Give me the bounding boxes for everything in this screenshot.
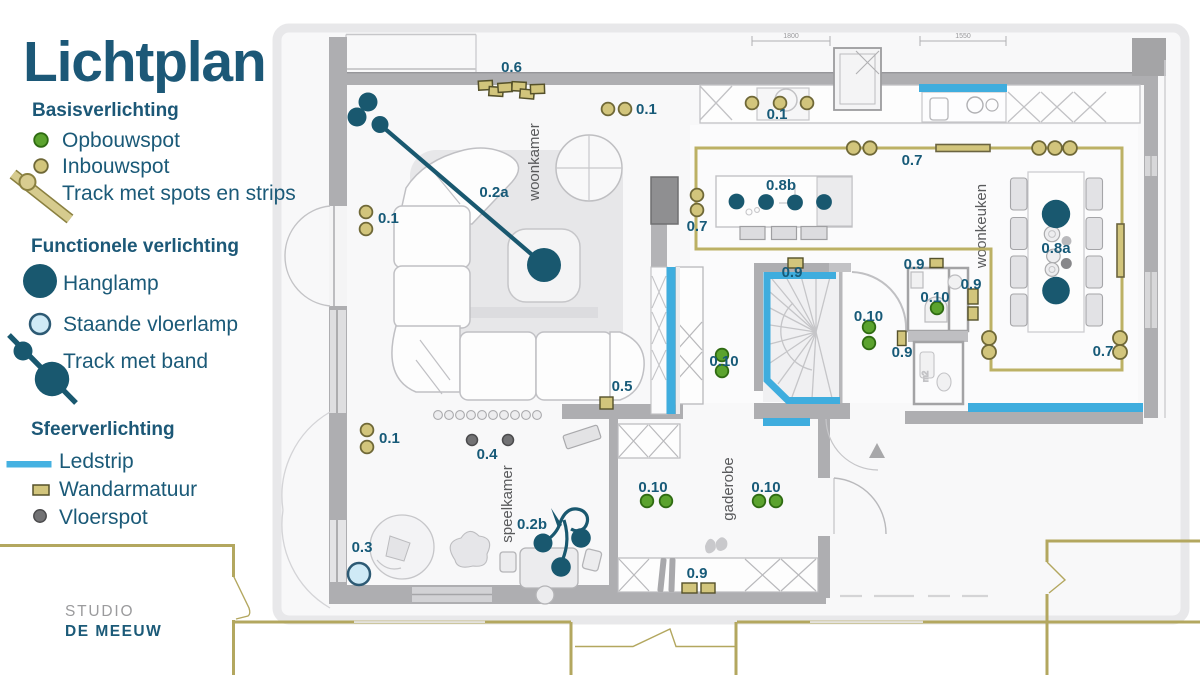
svg-text:gaderobe: gaderobe <box>720 457 737 520</box>
svg-text:0.10: 0.10 <box>920 289 949 306</box>
svg-text:0.1: 0.1 <box>379 430 400 447</box>
svg-text:DE MEEUW: DE MEEUW <box>65 623 162 640</box>
svg-text:0.10: 0.10 <box>751 479 780 496</box>
svg-text:0.7: 0.7 <box>902 152 923 169</box>
svg-text:1550: 1550 <box>955 33 971 40</box>
svg-text:woonkeuken: woonkeuken <box>973 184 990 269</box>
svg-text:0.3: 0.3 <box>352 539 373 556</box>
svg-text:0.8b: 0.8b <box>766 177 796 194</box>
svg-text:0.1: 0.1 <box>767 106 788 123</box>
svg-text:Lichtplan: Lichtplan <box>23 30 266 94</box>
svg-text:0.1: 0.1 <box>636 101 657 118</box>
svg-text:0.2b: 0.2b <box>517 516 547 533</box>
svg-text:Hanglamp: Hanglamp <box>63 272 159 295</box>
svg-text:Wandarmatuur: Wandarmatuur <box>59 478 197 501</box>
svg-text:0.4: 0.4 <box>477 446 499 463</box>
svg-text:0.10: 0.10 <box>854 308 883 325</box>
svg-text:Track met band: Track met band <box>63 350 208 373</box>
svg-text:woonkamer: woonkamer <box>526 123 543 202</box>
svg-text:speelkamer: speelkamer <box>499 465 516 543</box>
svg-text:m2: m2 <box>921 370 930 382</box>
svg-text:0.9: 0.9 <box>961 276 982 293</box>
svg-text:0.7: 0.7 <box>1093 343 1114 360</box>
svg-text:0.10: 0.10 <box>709 353 738 370</box>
svg-text:0.8a: 0.8a <box>1041 240 1071 257</box>
svg-text:0.6: 0.6 <box>501 59 522 76</box>
svg-text:Vloerspot: Vloerspot <box>59 506 148 529</box>
svg-text:0.2a: 0.2a <box>479 184 509 201</box>
svg-text:0.10: 0.10 <box>638 479 667 496</box>
svg-text:0.9: 0.9 <box>687 565 708 582</box>
svg-text:0.7: 0.7 <box>687 218 708 235</box>
svg-text:0.9: 0.9 <box>892 344 913 361</box>
svg-text:STUDIO: STUDIO <box>65 603 134 620</box>
svg-text:0.9: 0.9 <box>904 256 925 273</box>
svg-text:Staande vloerlamp: Staande vloerlamp <box>63 313 238 336</box>
svg-text:Inbouwspot: Inbouwspot <box>62 155 170 178</box>
svg-text:0.1: 0.1 <box>378 210 399 227</box>
svg-text:Functionele verlichting: Functionele verlichting <box>31 236 239 257</box>
svg-text:Sfeerverlichting: Sfeerverlichting <box>31 419 175 440</box>
svg-text:Basisverlichting: Basisverlichting <box>32 100 179 121</box>
svg-text:1800: 1800 <box>783 33 799 40</box>
svg-text:Opbouwspot: Opbouwspot <box>62 129 180 152</box>
svg-text:Track met spots en strips: Track met spots en strips <box>62 182 296 205</box>
svg-text:Ledstrip: Ledstrip <box>59 450 134 473</box>
svg-text:0.5: 0.5 <box>612 378 633 395</box>
svg-text:0.9: 0.9 <box>782 264 803 281</box>
